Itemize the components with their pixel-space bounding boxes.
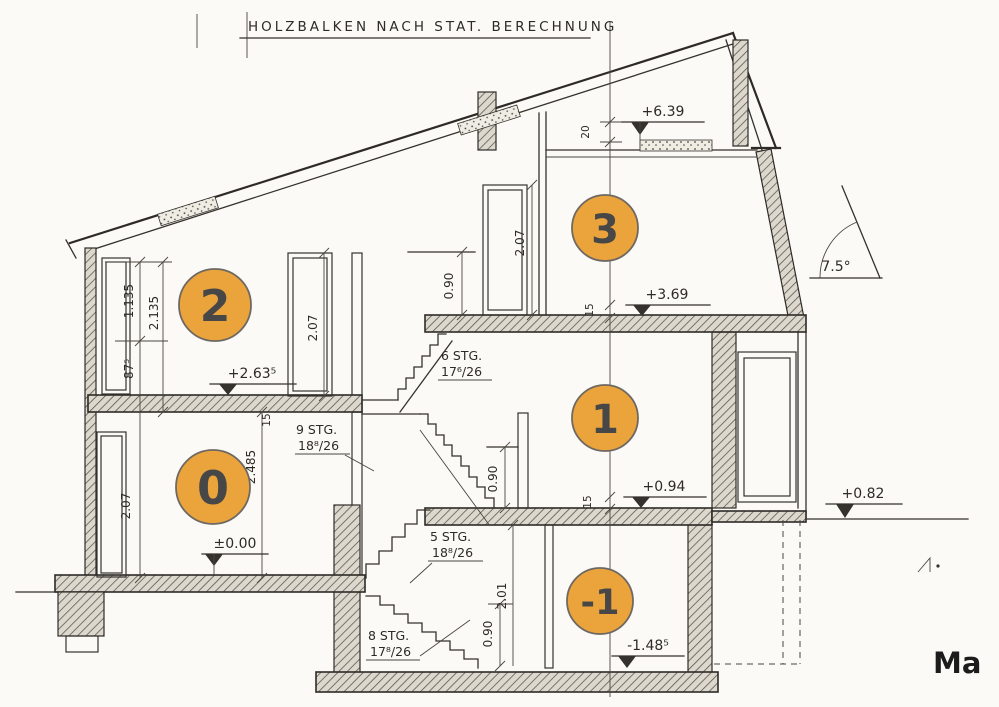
left-footing-step [66, 636, 98, 652]
level-marker-icon [618, 656, 636, 668]
corner-label: Ma [933, 646, 981, 680]
dim-window-full: 2.135 [147, 296, 161, 330]
level-badge-1-label: 1 [591, 397, 619, 443]
stair-label-5stg-line1: 5 STG. [430, 529, 471, 544]
left-footing [58, 592, 104, 636]
level-badge-0[interactable]: 0 [176, 450, 250, 524]
level-badge-minus1-label: -1 [581, 583, 620, 623]
elevation-floor0: ±0.00 [214, 536, 257, 552]
level3-floor-slab [425, 315, 806, 332]
stair-flight-6stg [398, 334, 446, 400]
section-drawing-canvas: +6.39 +3.69 +2.63⁵ +0.94 +0.82 ±0.00 -1.… [0, 0, 999, 707]
ridge-post [733, 40, 748, 146]
dim-door0-height: 2.07 [119, 493, 133, 520]
level-badge-1[interactable]: 1 [572, 385, 638, 451]
right-exterior-wall [756, 149, 806, 331]
level-badge-0-label: 0 [197, 461, 229, 515]
holzbalken-note: HOLZBALKEN NACH STAT. BERECHNUNG [248, 19, 617, 35]
stair-wall [334, 505, 360, 690]
stair-rail-post [518, 413, 528, 508]
basement-partition [545, 525, 553, 668]
level-badge-3[interactable]: 3 [572, 195, 638, 261]
basement-floor-slab [316, 672, 718, 692]
elevation-floor1: +0.94 [643, 479, 686, 495]
ceiling-insulation-strip [640, 140, 712, 151]
elevation-terrace: +0.82 [842, 486, 885, 502]
dim-window-upper: 1.135 [122, 284, 136, 318]
level-marker-icon [219, 384, 237, 395]
stair-label-6stg-line2: 17⁶/26 [441, 364, 482, 379]
roof-angle-label: 7.5° [821, 259, 850, 275]
dim-basement-window: 0.90 [481, 621, 495, 648]
level1-window [738, 352, 796, 502]
dim-basement-door: 2.01 [495, 583, 509, 610]
basement-right-wall [688, 525, 712, 674]
stair-label-9stg-line2: 18⁸/26 [298, 438, 339, 453]
dim-slab-15-level1: 15 [582, 495, 594, 508]
scanned-section-drawing: +6.39 +3.69 +2.63⁵ +0.94 +0.82 ±0.00 -1.… [0, 0, 999, 707]
dim-door2-height: 2.07 [306, 315, 320, 342]
elevation-floor2: +2.63⁵ [228, 366, 277, 382]
level-badge-2[interactable]: 2 [179, 269, 251, 341]
left-exterior-wall [85, 248, 96, 578]
dim-rail1-height: 0.90 [486, 466, 500, 493]
level-marker-icon [836, 504, 854, 518]
dim-rail3-height: 0.90 [442, 273, 456, 300]
stairwell-wall-upper [352, 253, 362, 412]
elevation-basement: -1.48⁵ [627, 638, 669, 654]
dim-slab-15-level2: 15 [261, 413, 273, 426]
dim-door3-height: 2.07 [513, 230, 527, 257]
dim-parapet: 87⁵ [122, 359, 136, 379]
roof-structure [66, 33, 806, 331]
terrace-slab [712, 511, 806, 522]
level1-floor-slab [425, 508, 712, 525]
dim-slab-15-level3: 15 [584, 303, 596, 316]
level-badge-3-label: 3 [591, 207, 619, 253]
dim-slab-20: 20 [580, 125, 592, 138]
stair-label-6stg-line1: 6 STG. [441, 348, 482, 363]
level-marker-icon [632, 497, 650, 508]
window-pier [712, 332, 736, 508]
stair-flight-5stg [366, 510, 430, 578]
stair-label-8stg-line2: 17⁸/26 [370, 644, 411, 659]
level2-floor-slab [88, 395, 362, 412]
stair-flight-9stg [420, 414, 494, 508]
stair-label-5stg-line2: 18⁸/26 [432, 545, 473, 560]
level-badge-2-label: 2 [200, 281, 231, 332]
benchmark-icon [918, 558, 930, 572]
stair-label-8stg-line1: 8 STG. [368, 628, 409, 643]
level-badge-minus1[interactable]: -1 [567, 568, 633, 634]
stairs [362, 334, 494, 668]
roof-angle-annotation: 7.5° [810, 186, 882, 278]
stair-label-9stg-line1: 9 STG. [296, 422, 337, 437]
elevation-floor3: +3.69 [646, 287, 689, 303]
elevation-roof: +6.39 [642, 104, 685, 120]
roof-insulation-strip [158, 196, 219, 225]
